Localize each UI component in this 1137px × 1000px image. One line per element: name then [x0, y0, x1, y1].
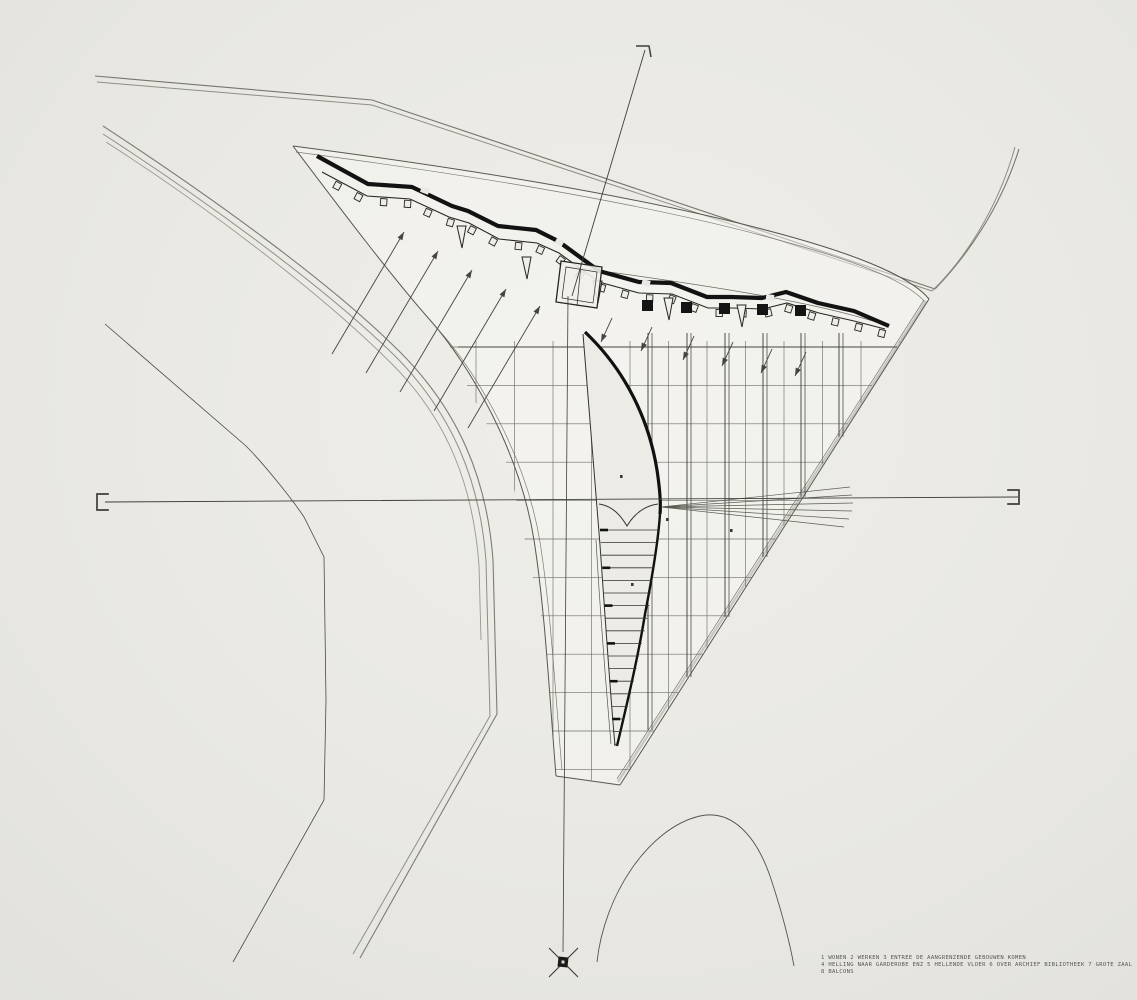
stair-core — [556, 261, 602, 308]
scanned-architectural-plan: 1 WONEN 2 WERKEN 3 ENTREE DE AANGRENZEND… — [0, 0, 1137, 1000]
legend-line-2: 4 HELLING NAAR GARDEROBE ENZ 5 HELLENDE … — [821, 962, 1131, 969]
legend-line-3: 8 BALCONS — [821, 969, 1131, 976]
legend-line-1: 1 WONEN 2 WERKEN 3 ENTREE DE AANGRENZEND… — [821, 955, 1131, 962]
legend: 1 WONEN 2 WERKEN 3 ENTREE DE AANGRENZEND… — [821, 955, 1131, 976]
site-plan-svg — [0, 0, 1137, 1000]
